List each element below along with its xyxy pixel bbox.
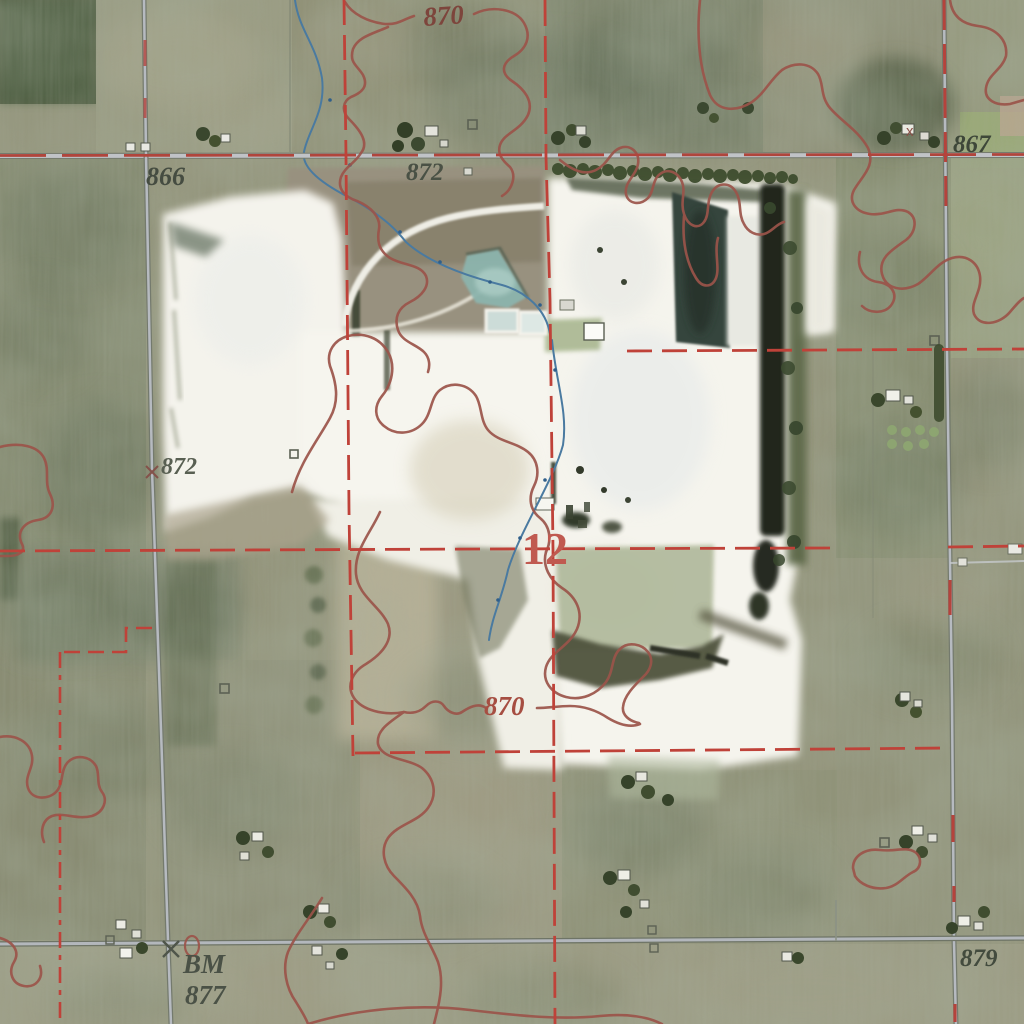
svg-text:877: 877	[185, 980, 227, 1010]
svg-text:870: 870	[484, 691, 525, 721]
svg-text:867: 867	[953, 131, 992, 158]
svg-text:12: 12	[522, 523, 568, 574]
svg-text:870: 870	[422, 0, 465, 32]
svg-text:872: 872	[406, 159, 444, 186]
svg-text:866: 866	[146, 162, 185, 191]
svg-text:872: 872	[161, 454, 197, 480]
svg-text:879: 879	[960, 945, 998, 972]
svg-text:BM: BM	[182, 949, 226, 979]
svg-text:x: x	[906, 123, 914, 140]
